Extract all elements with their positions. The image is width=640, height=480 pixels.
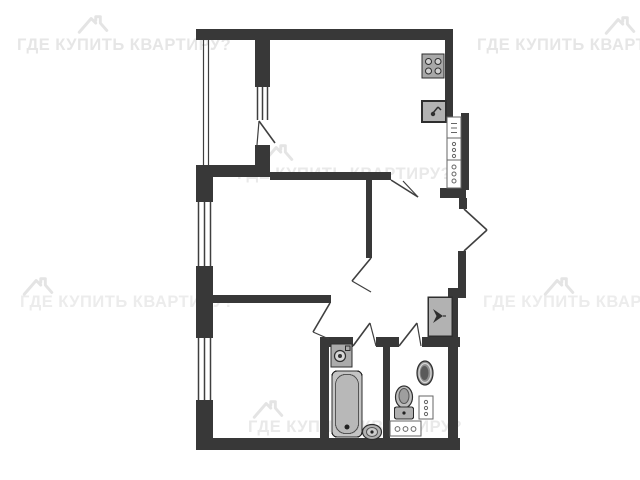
floor-plan-drawing xyxy=(0,0,640,480)
toilet-wall-basin-inner xyxy=(421,366,429,380)
bedroom-door-leaf xyxy=(313,303,330,332)
bedroom-wall-top xyxy=(213,295,331,303)
bathroom-basin-drain xyxy=(370,430,373,433)
bathroom-door-arc xyxy=(370,323,376,346)
entrance-door-leaf xyxy=(464,230,487,251)
outer-wall-top xyxy=(196,29,453,40)
living-wall-right xyxy=(366,180,372,258)
loggia-wall-right-upper xyxy=(255,40,270,87)
bath-toilet-divider xyxy=(383,347,390,438)
wet-zone-wall-b xyxy=(376,337,399,347)
outer-wall-left-2 xyxy=(196,266,213,338)
washing-machine-drum-dot xyxy=(338,354,342,358)
stove xyxy=(422,54,444,78)
outer-wall-left-1 xyxy=(196,177,213,202)
balcony-door-leaf xyxy=(259,121,275,143)
toilet-tank-button xyxy=(402,411,405,414)
floor-plan-screenshot: ГДЕ КУПИТЬ КВАРТИРУ? ГДЕ КУПИТЬ КВАРТИРУ… xyxy=(0,0,640,480)
shaft-wall-right xyxy=(461,113,469,190)
stove-burner xyxy=(426,68,432,74)
kitchen-hall-wall xyxy=(270,172,391,180)
toilet-bowl-inner xyxy=(399,389,409,404)
bathroom-door-leaf xyxy=(353,323,370,346)
entry-wall-lower xyxy=(458,251,466,291)
bathroom-wall-left xyxy=(320,340,329,438)
living-door-leaf xyxy=(352,258,371,281)
stove-burner xyxy=(435,68,441,74)
toilet-door-leaf xyxy=(399,323,417,346)
bathtub-drain xyxy=(345,425,350,430)
toilet-door-arc xyxy=(417,323,421,346)
outer-wall-bottom xyxy=(196,438,460,450)
stove-burner xyxy=(426,59,432,65)
entry-wall-upper xyxy=(459,198,467,209)
loggia-wall-bottom xyxy=(196,165,270,177)
loggia-wall-right-lower xyxy=(255,145,270,167)
living-door-arc xyxy=(352,281,371,292)
entrance-door-leaf xyxy=(464,209,487,230)
stove-burner xyxy=(435,59,441,65)
balcony-door-arc xyxy=(257,121,259,145)
